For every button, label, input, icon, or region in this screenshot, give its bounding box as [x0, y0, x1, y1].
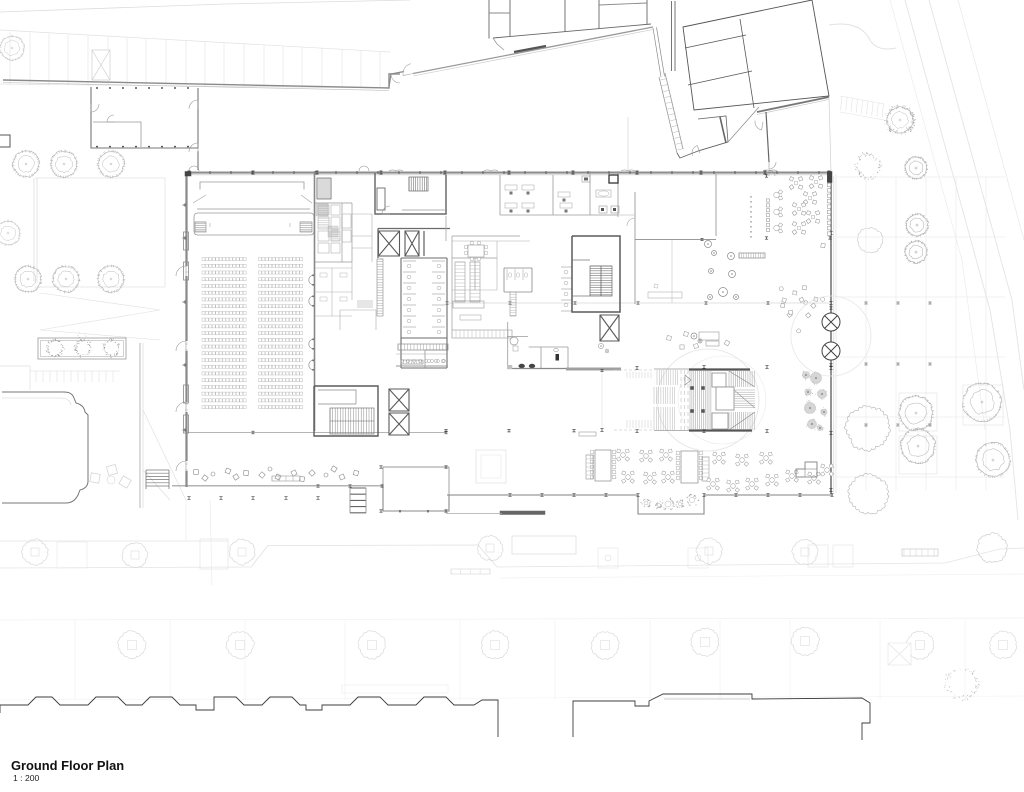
svg-text:1 : 200: 1 : 200: [13, 773, 40, 783]
svg-text:Ground Floor Plan: Ground Floor Plan: [11, 758, 124, 773]
